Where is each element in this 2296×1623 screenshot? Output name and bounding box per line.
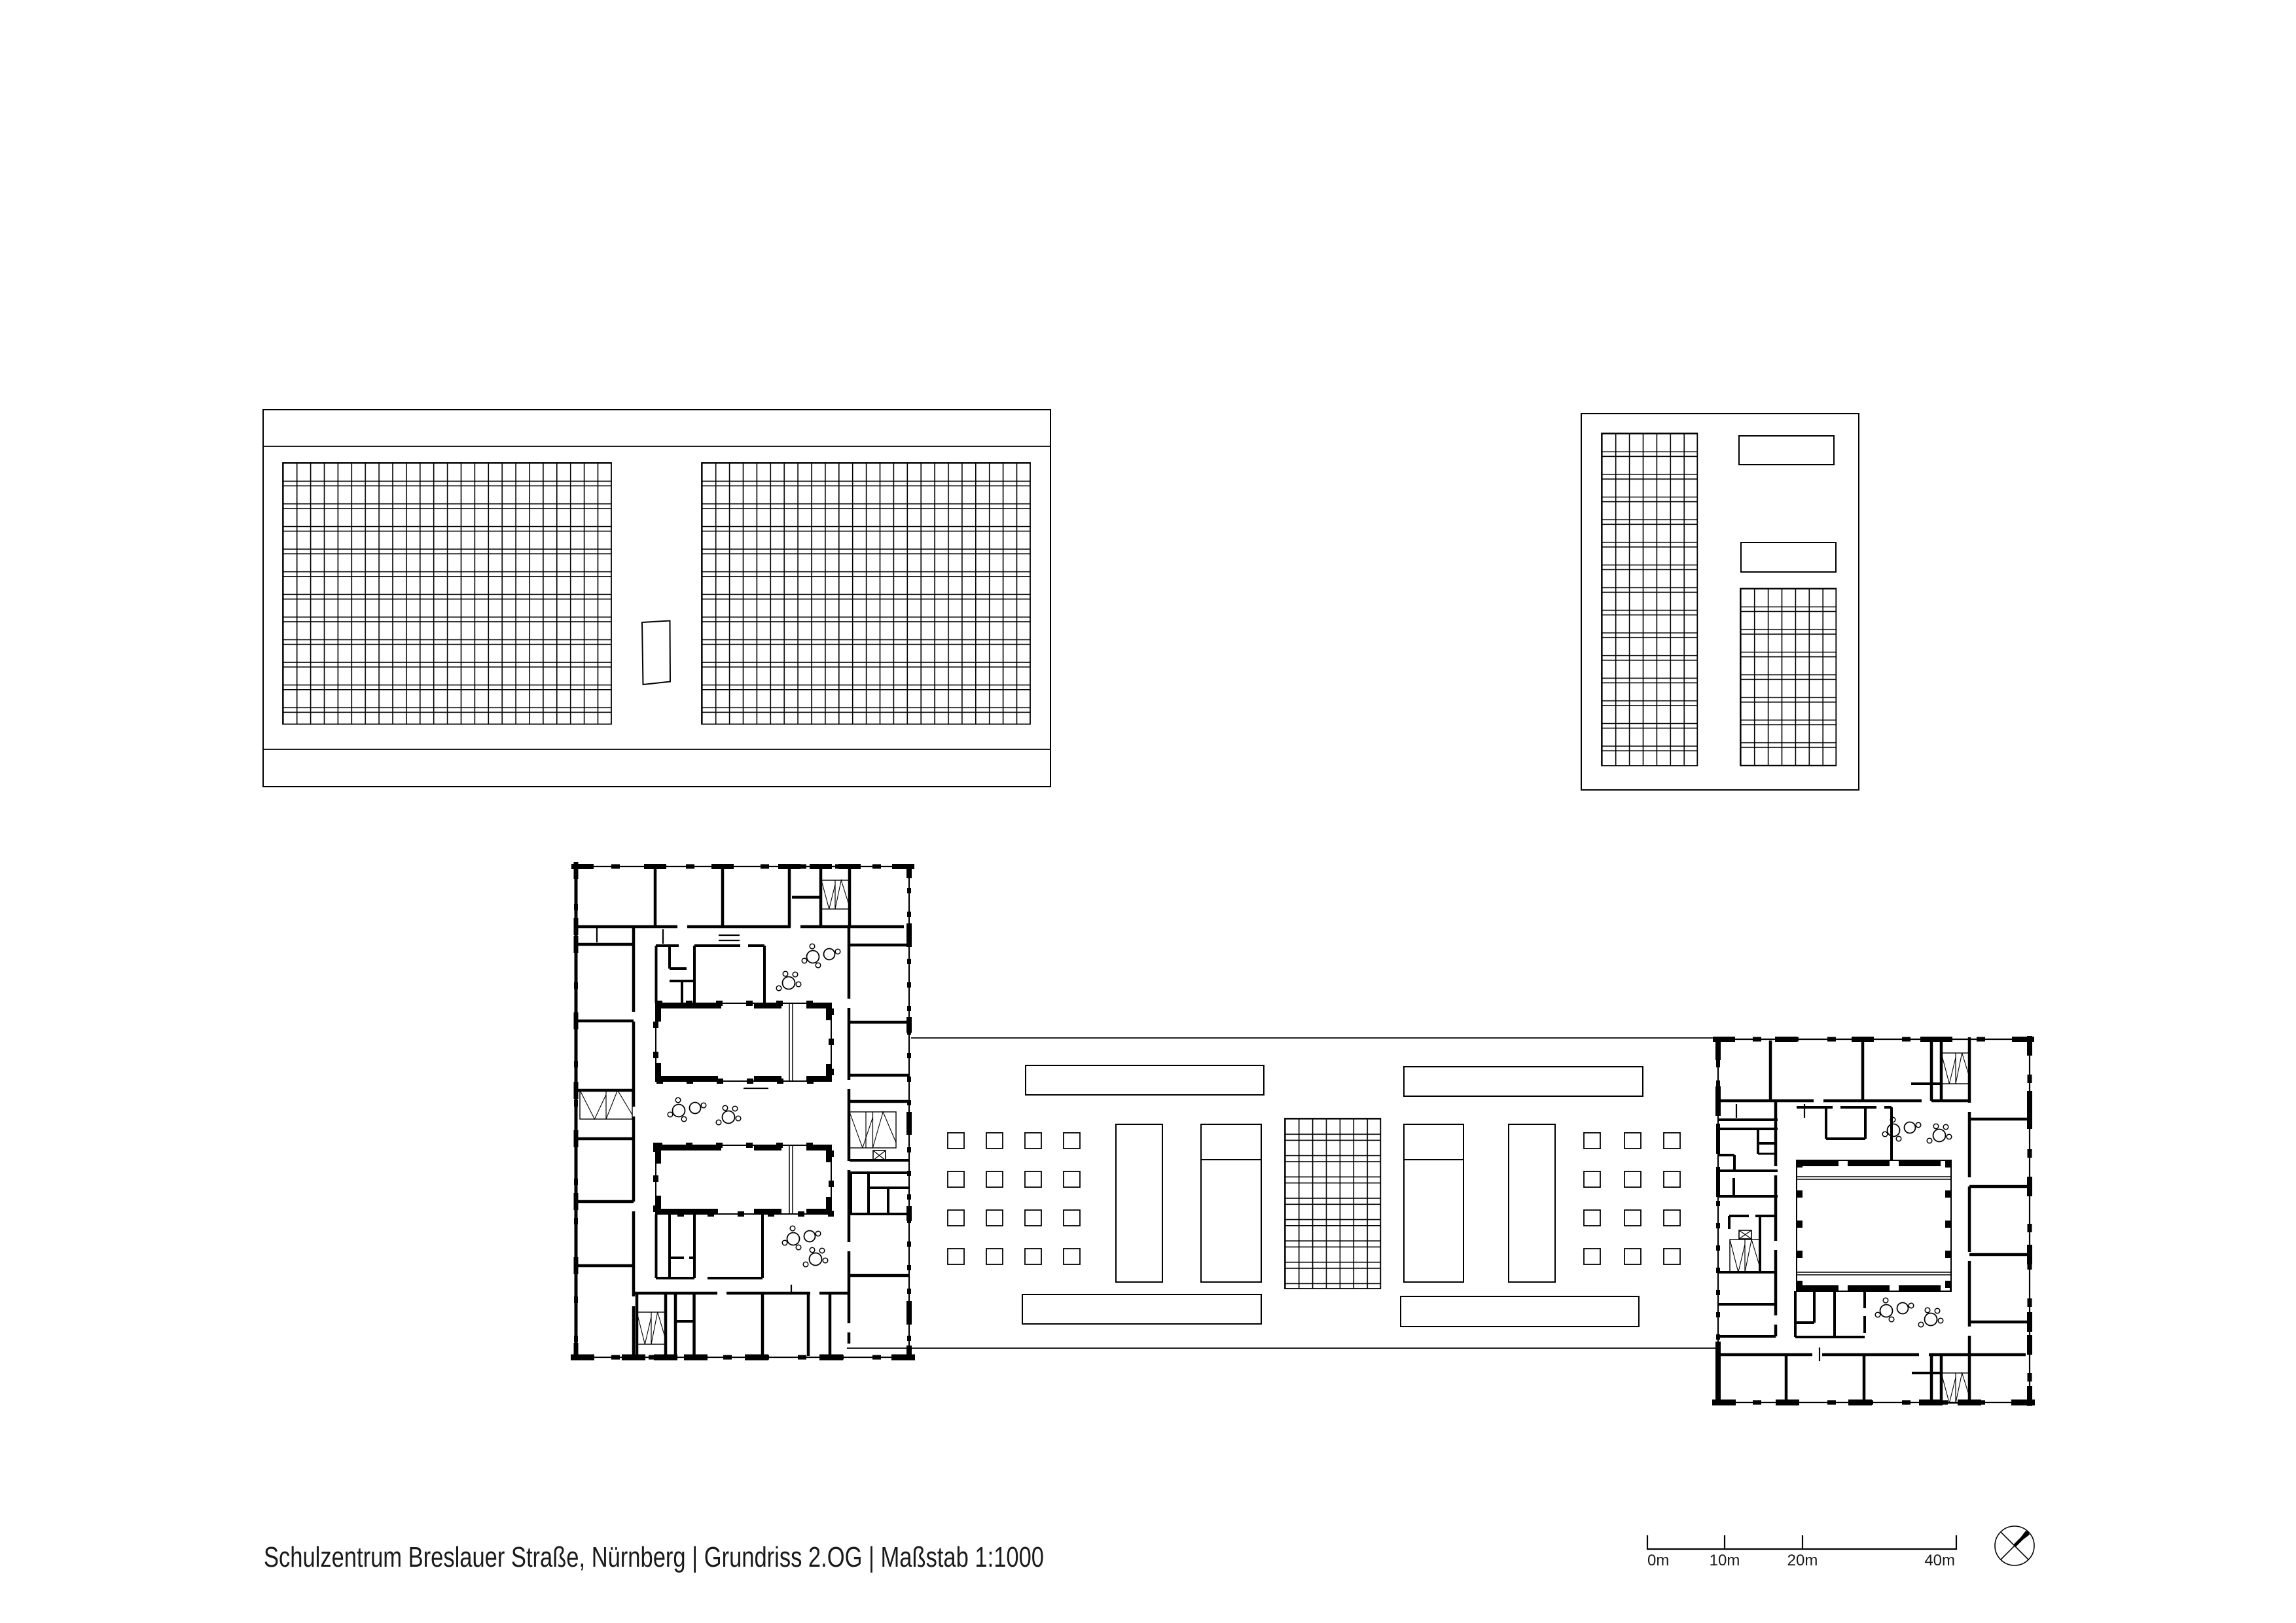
svg-text:0m: 0m xyxy=(1647,1552,1669,1569)
svg-text:20m: 20m xyxy=(1787,1552,1818,1569)
svg-text:10m: 10m xyxy=(1710,1552,1740,1569)
svg-text:40m: 40m xyxy=(1924,1552,1955,1569)
svg-text:Schulzentrum Breslauer Straße,: Schulzentrum Breslauer Straße, Nürnberg … xyxy=(264,1541,1044,1573)
